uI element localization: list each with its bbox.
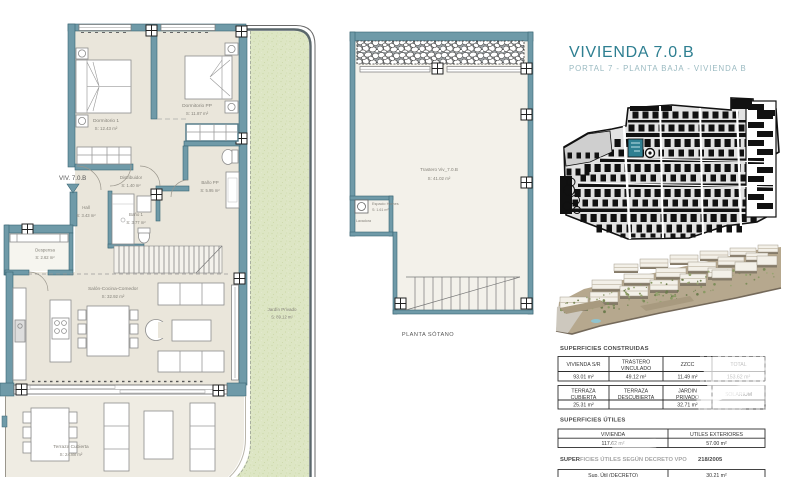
svg-text:VIVIENDA 7.0.B: VIVIENDA 7.0.B — [569, 44, 694, 61]
svg-text:Dormitorio 1: Dormitorio 1 — [93, 118, 119, 124]
svg-text:SUPERFICIES CONSTRUIDAS: SUPERFICIES CONSTRUIDAS — [560, 346, 649, 352]
svg-text:11.49 m²: 11.49 m² — [677, 375, 697, 381]
svg-text:S: 32.92 m²: S: 32.92 m² — [102, 294, 125, 299]
svg-text:PLANTA SÓTANO: PLANTA SÓTANO — [402, 331, 454, 338]
svg-text:VINCULADO: VINCULADO — [621, 366, 651, 372]
svg-text:93.01 m²: 93.01 m² — [573, 375, 594, 381]
svg-text:218/2005: 218/2005 — [698, 457, 723, 463]
svg-text:Jardín Privado: Jardín Privado — [267, 307, 297, 312]
svg-text:Terraza Cubierta: Terraza Cubierta — [53, 444, 89, 450]
svg-text:TERRAZA: TERRAZA — [571, 389, 596, 395]
svg-text:TERRAZA: TERRAZA — [624, 389, 649, 395]
svg-text:32.71 m²: 32.71 m² — [677, 403, 698, 409]
svg-text:S: 12.43 m²: S: 12.43 m² — [95, 126, 118, 131]
svg-text:DESCUBIERTA: DESCUBIERTA — [618, 395, 655, 401]
svg-text:TRASTERO: TRASTERO — [622, 360, 650, 366]
svg-text:S: 3.77 m²: S: 3.77 m² — [126, 220, 146, 225]
svg-text:Sup. Útil (DECRETO): Sup. Útil (DECRETO) — [588, 472, 638, 477]
svg-text:49.12 m²: 49.12 m² — [626, 375, 647, 381]
svg-text:57.00 m²: 57.00 m² — [706, 441, 727, 447]
svg-text:PRIVADO: PRIVADO — [676, 395, 699, 401]
svg-text:Dormitorio PP: Dormitorio PP — [182, 103, 212, 109]
svg-text:Salón-Cocina-Comedor: Salón-Cocina-Comedor — [88, 286, 139, 292]
svg-text:Despensa: Despensa — [35, 248, 55, 253]
svg-text:PORTAL 7 - PLANTA BAJA - VIVIE: PORTAL 7 - PLANTA BAJA - VIVIENDA B — [569, 64, 747, 73]
svg-text:JARDIN: JARDIN — [678, 389, 697, 395]
svg-text:S: 11.87 m²: S: 11.87 m² — [186, 111, 209, 116]
svg-text:SUPERFICIES ÚTILES: SUPERFICIES ÚTILES — [560, 417, 625, 424]
svg-text:VIV. 7.0.B: VIV. 7.0.B — [59, 175, 86, 182]
svg-text:Lavadora: Lavadora — [356, 219, 371, 223]
svg-text:ZZCC: ZZCC — [681, 362, 695, 368]
svg-text:25.31 m²: 25.31 m² — [573, 403, 594, 409]
svg-text:S: 2.62 m²: S: 2.62 m² — [35, 255, 55, 260]
svg-text:VIVIENDA S/R: VIVIENDA S/R — [566, 362, 600, 368]
svg-text:30.21 m²: 30.21 m² — [706, 473, 727, 477]
svg-text:Baño 1: Baño 1 — [129, 212, 143, 217]
svg-text:S: 1.40 m²: S: 1.40 m² — [121, 183, 141, 188]
svg-text:S: 1.61 m²: S: 1.61 m² — [372, 208, 389, 212]
svg-text:S: 89.12 m²: S: 89.12 m² — [271, 315, 293, 320]
svg-text:Distribuidor: Distribuidor — [120, 175, 143, 180]
svg-text:S: 24.88 m²: S: 24.88 m² — [60, 452, 83, 457]
svg-text:Baño PP: Baño PP — [201, 180, 218, 185]
svg-text:UTILES EXTERIORES: UTILES EXTERIORES — [690, 432, 744, 438]
svg-text:CUBIERTA: CUBIERTA — [571, 395, 597, 401]
svg-text:S: 41.02 m²: S: 41.02 m² — [428, 176, 451, 181]
svg-text:Espacio Homes: Espacio Homes — [372, 202, 399, 206]
svg-text:S: 5.95 m²: S: 5.95 m² — [200, 188, 220, 193]
svg-text:Hall: Hall — [82, 205, 90, 210]
svg-text:VIVIENDA: VIVIENDA — [601, 432, 626, 438]
svg-text:S: 3.43 m²: S: 3.43 m² — [76, 213, 96, 218]
svg-text:Trastero Viv_7.0.B: Trastero Viv_7.0.B — [420, 167, 458, 172]
